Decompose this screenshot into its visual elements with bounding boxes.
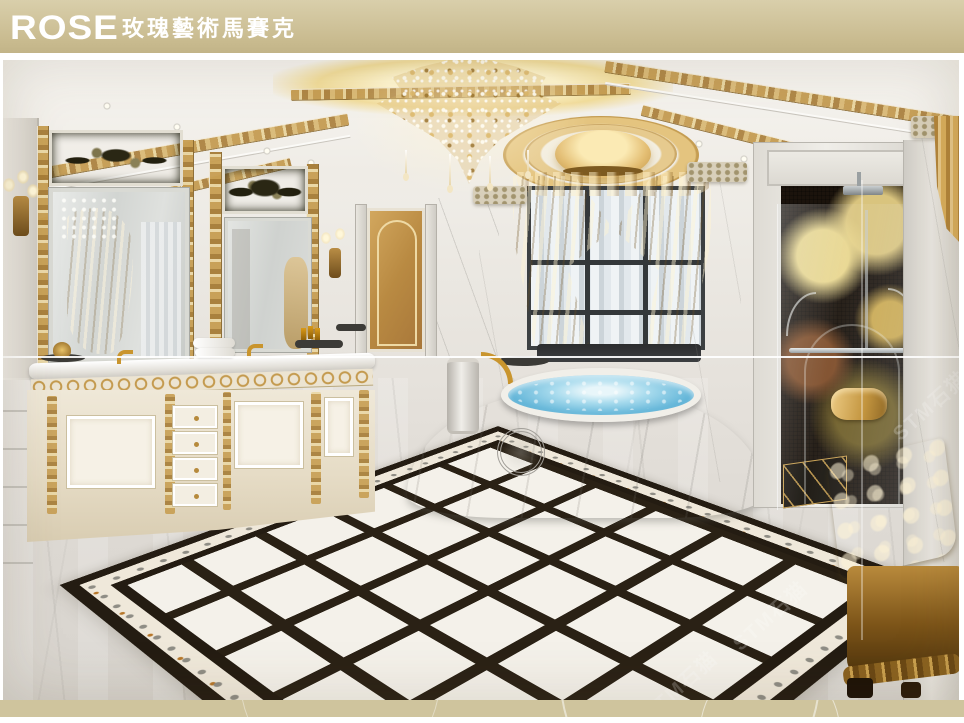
brand-chinese-text: 玫瑰藝術馬賽克	[122, 13, 297, 45]
left-wall-pilaster	[3, 118, 39, 380]
drawer-knob	[194, 416, 199, 421]
gold-ottoman	[841, 464, 959, 700]
marble-baluster	[447, 358, 479, 434]
photo-seam-line	[3, 356, 959, 358]
etched-scroll-left	[786, 292, 816, 336]
crystal-strand	[489, 156, 491, 186]
cabinet-panel	[325, 398, 353, 456]
apron-medallion	[497, 428, 545, 476]
gold-rolled-towel	[831, 388, 887, 420]
column-capital	[687, 162, 747, 182]
rolled-towel	[193, 338, 235, 348]
counter-tray	[295, 340, 343, 348]
gold-ornament-strip	[223, 392, 231, 510]
marble-reflection	[232, 229, 250, 349]
recessed-spotlight	[263, 147, 271, 155]
watermark-arc	[700, 700, 840, 717]
sheer-reflection	[141, 222, 181, 362]
marble-pilaster	[425, 204, 437, 358]
drawer	[173, 458, 217, 480]
recessed-spotlight	[103, 102, 111, 110]
cabinet-panel	[235, 402, 303, 468]
drawer	[173, 432, 217, 454]
bathtub-water	[501, 368, 701, 422]
ottoman-damask-top	[827, 437, 958, 580]
shower-slide-bar	[865, 210, 868, 350]
ottoman-leg	[901, 682, 921, 698]
crystal-strand	[449, 154, 451, 188]
chandelier-reflection	[59, 196, 119, 240]
drawer-knob	[194, 468, 199, 473]
shower-header-panel	[767, 150, 921, 186]
crystal-chandelier	[359, 60, 579, 184]
footer-band	[0, 700, 964, 717]
drawer-knob	[194, 494, 199, 499]
amber-bottle	[308, 326, 313, 339]
golden-marble-door	[367, 208, 425, 352]
ottoman-leg	[847, 678, 873, 698]
cabinet-panel	[67, 416, 155, 488]
glass-edge-highlight	[861, 180, 863, 640]
gold-trim-band	[37, 126, 49, 370]
towel-bar	[789, 348, 905, 353]
crystal-strand	[527, 150, 529, 174]
bronze-frieze-panel	[222, 166, 308, 214]
water-sparkle	[512, 379, 690, 411]
drawer-knob	[194, 442, 199, 447]
drawer	[173, 484, 217, 506]
gold-ornament-strip	[359, 390, 369, 498]
bronze-frieze-panel	[49, 130, 183, 186]
crystal-strand	[405, 150, 407, 176]
gold-ornament-strip	[47, 396, 57, 514]
gold-ornament-strip	[311, 392, 321, 504]
shower-head	[843, 186, 883, 195]
presentation-slide: ROSE 玫瑰藝術馬賽克	[0, 0, 964, 723]
counter-tray	[336, 324, 366, 331]
drawer	[173, 406, 217, 428]
window-sill-shadow	[537, 344, 701, 362]
marble-pilaster	[355, 204, 367, 356]
rose-logo: ROSE	[10, 8, 119, 48]
header-band: ROSE 玫瑰藝術馬賽克	[0, 0, 964, 53]
luxury-bathroom-rendering: STM石猫 STM石猫 STM石猫	[3, 60, 959, 700]
vanity-mirror-right	[225, 218, 311, 352]
watermark-arc	[240, 700, 440, 717]
vanity-mirror-left	[49, 188, 189, 362]
door-arch-inlay	[377, 220, 417, 346]
